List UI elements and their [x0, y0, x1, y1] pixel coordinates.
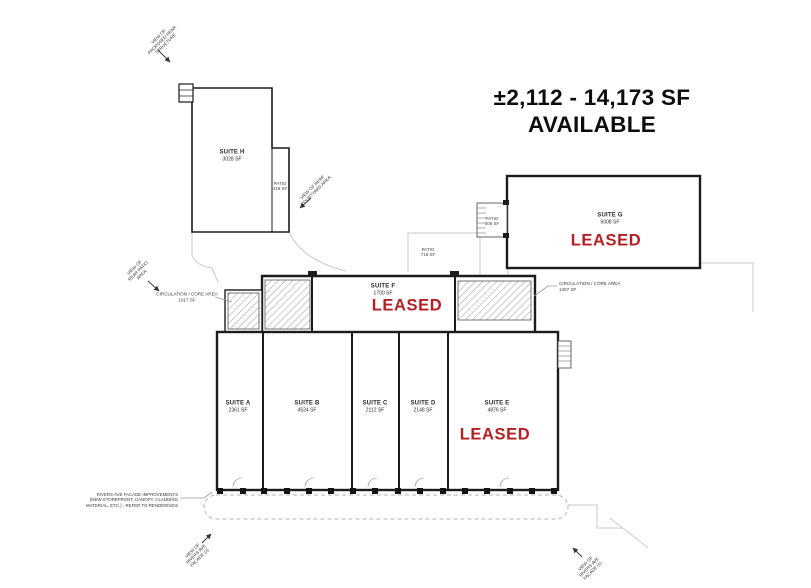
patio-h-label: PATIO 418 SF: [273, 181, 288, 191]
suite-g-leased-stamp: LEASED: [571, 232, 642, 251]
availability-range: ±2,112 - 14,173 SF: [494, 84, 691, 111]
suite-b-label: SUITE B 4524 SF: [294, 401, 319, 414]
stair-notch: [179, 84, 193, 102]
walkway-dashed: [204, 495, 568, 519]
availability-headline: ±2,112 - 14,173 SF AVAILABLE: [494, 84, 691, 138]
core-hatch-right: [458, 281, 531, 320]
patio-g-label: PATIO 406 SF: [485, 216, 500, 226]
suite-c-label: SUITE C 2112 SF: [362, 401, 387, 414]
suite-h-label: SUITE H 3028 SF: [219, 150, 244, 163]
core-hatch-left-b: [265, 280, 310, 329]
patio-center-label: PATIO 718 SF: [421, 247, 436, 257]
suite-e-leased-stamp: LEASED: [460, 426, 531, 445]
suite-a-label: SUITE A 2361 SF: [226, 401, 251, 414]
facade-improvements-note: RIVERS AVE FACADE IMPROVEMENTS (NEW STOR…: [68, 492, 178, 508]
circulation-left-label: CIRCULATION / CORE AREA 1017 SF: [156, 291, 217, 302]
suite-g-label: SUITE G 5008 SF: [597, 213, 622, 226]
suite-e-label: SUITE E 4876 SF: [485, 401, 510, 414]
suite-g-outline: [477, 176, 700, 268]
suite-d-label: SUITE D 2148 SF: [410, 401, 435, 414]
availability-word: AVAILABLE: [494, 111, 691, 138]
suite-f-label: SUITE F 1700 SF: [371, 284, 395, 297]
circulation-right-label: CIRCULATION / CORE AREA 1367 SF: [559, 281, 620, 292]
floor-plan-canvas: ±2,112 - 14,173 SF AVAILABLE SUITE H 302…: [0, 0, 811, 588]
suite-f-leased-stamp: LEASED: [372, 297, 443, 316]
core-hatch-left-a: [228, 293, 259, 329]
